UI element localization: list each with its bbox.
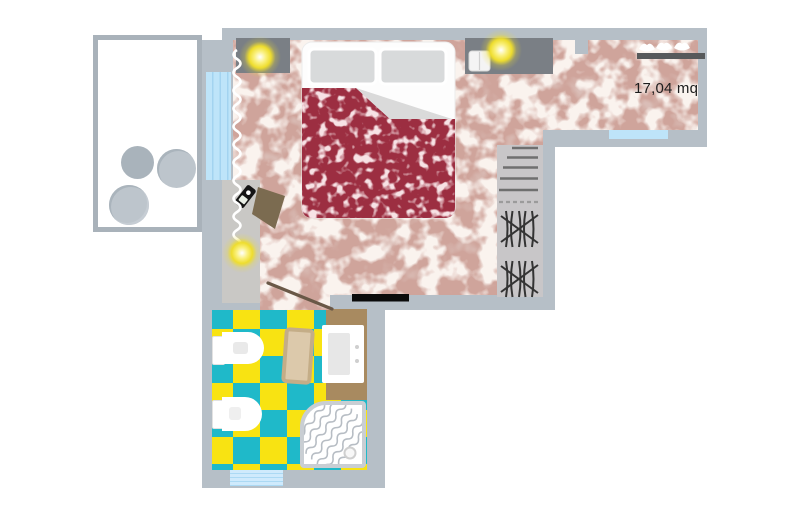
tap-hole-2 — [355, 359, 359, 363]
clothes-hanging-icon-2 — [501, 261, 538, 297]
wall-bath-right — [367, 310, 385, 488]
area-label: 17,04 mq — [634, 80, 698, 97]
balcony-stool-1 — [121, 146, 154, 179]
duvet — [302, 88, 455, 218]
pillow-right — [380, 49, 446, 84]
basin — [328, 333, 350, 375]
bidet-detail — [229, 407, 241, 420]
phone — [234, 184, 257, 209]
clothes-rail — [637, 53, 705, 59]
wall-bottom-left — [202, 295, 260, 310]
wall-pier — [575, 40, 588, 54]
drain-icon — [345, 448, 356, 459]
curtain — [234, 50, 241, 248]
desk-chair — [252, 187, 285, 229]
clothes-hanging-icon-1 — [501, 211, 538, 247]
wall-bedroom-right — [543, 130, 555, 310]
bidet — [222, 397, 262, 431]
wing-window — [609, 130, 668, 139]
balcony-stool-3 — [109, 185, 149, 225]
shower-tray — [300, 401, 366, 468]
floor-plan: 17,04 mq — [0, 0, 800, 520]
bath-mat — [281, 327, 315, 385]
balcony-stool-2 — [157, 149, 196, 188]
bathroom-door-swing — [268, 283, 332, 309]
washbasin — [322, 325, 364, 383]
wardrobe-shelves-icon — [499, 148, 538, 190]
bathroom-window — [230, 470, 283, 486]
bedroom-floor — [233, 40, 698, 310]
book-icon — [469, 51, 490, 71]
wall-bath-left — [202, 310, 212, 488]
nightstand-right — [465, 38, 553, 74]
shower-water-icon — [304, 405, 362, 464]
balcony-window — [206, 72, 231, 180]
double-bed — [302, 42, 455, 218]
duvet-folded-corner — [356, 88, 452, 119]
wall-top — [222, 28, 707, 40]
coat-hanger-icons — [639, 43, 690, 52]
wardrobe — [497, 145, 543, 297]
pillow-left — [309, 49, 376, 84]
wall-bottom-right — [328, 295, 555, 310]
tap-hole-1 — [355, 345, 359, 349]
toilet-lid-detail — [233, 342, 248, 354]
ceiling-lamp-left — [239, 36, 281, 78]
nightstand-left — [236, 38, 290, 73]
